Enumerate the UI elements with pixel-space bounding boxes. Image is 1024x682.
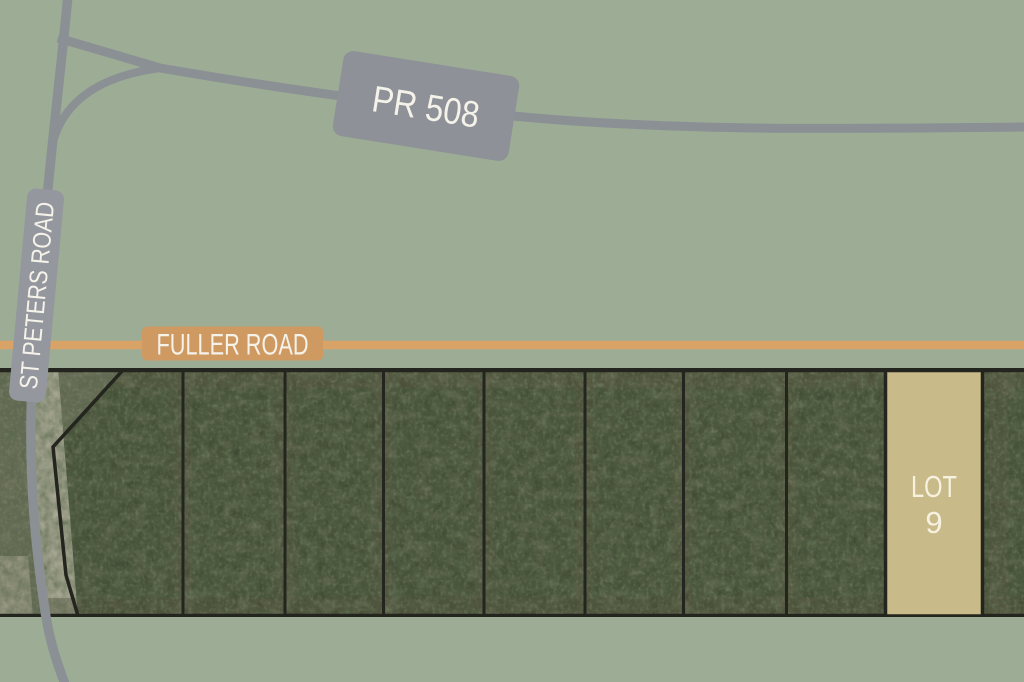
texture-brown [0,368,1024,617]
map-canvas: LOT 9 FULLER ROAD PR 508 ST PETERS ROAD [0,0,1024,682]
fuller-road-label-text: FULLER ROAD [157,329,309,362]
lot-9-label-line1: LOT [911,469,957,504]
lot-9-parcel: LOT 9 [886,371,983,617]
lot-map: LOT 9 FULLER ROAD PR 508 ST PETERS ROAD [0,0,1024,682]
lot-9-label-line2: 9 [925,505,942,540]
fuller-road-label: FULLER ROAD [142,327,323,362]
satellite-band: LOT 9 [0,368,1024,617]
